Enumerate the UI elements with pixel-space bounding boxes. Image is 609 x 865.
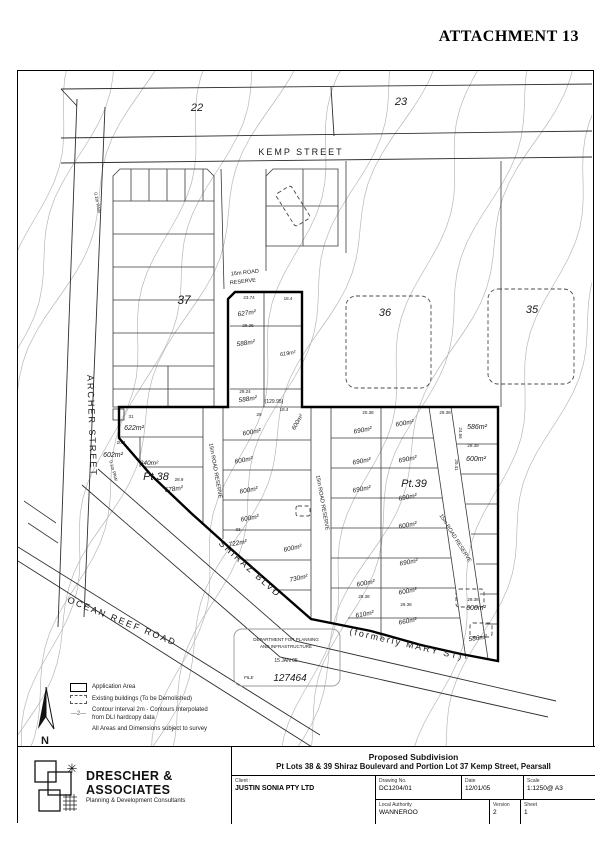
lot-area-label: 600m²	[291, 413, 305, 432]
project-title: Proposed Subdivision	[369, 752, 459, 762]
reserve-label: 0.1m PAW	[108, 460, 118, 482]
street-label: ARCHER STREET	[85, 375, 99, 477]
reserve-label: 0.1m PAW	[93, 192, 102, 214]
attachment-title: ATTACHMENT 13	[439, 28, 579, 46]
lot-area-label: 690m²	[398, 454, 418, 464]
street-label: SHIRAZ BLVD	[217, 538, 283, 599]
parcel-number: 36	[379, 307, 392, 319]
dimension-label: 20.41	[454, 459, 459, 471]
date-value: 12/01/05	[465, 785, 520, 792]
lot-area-label: 690m²	[353, 425, 373, 435]
scanned-plan-page: ATTACHMENT 13	[0, 0, 609, 865]
legend-application-area-label: Application Area	[92, 684, 135, 692]
dimension-label: 29.38	[358, 594, 370, 599]
dimension-label: 29.39	[467, 443, 479, 448]
lot-area-label: 602m²	[103, 452, 124, 459]
lot-area-label: 622m²	[124, 425, 145, 432]
dimension-label: 18.4	[284, 296, 293, 301]
project-subtitle: Pt Lots 38 & 39 Shiraz Boulevard and Por…	[276, 762, 551, 771]
dimension-label: 24.56	[458, 427, 463, 439]
dimension-label: 23.74	[243, 295, 255, 300]
parcel-number: 22	[190, 102, 203, 114]
north-label: N	[41, 735, 49, 746]
plan-sheet: DEPARTMENT FOR PLANNING AND INFRASTRUCTU…	[17, 70, 594, 823]
sheet-cell: Sheet 1	[521, 800, 595, 824]
lot-area-label: 588m²	[238, 395, 258, 405]
lot-area-label: 600m²	[466, 605, 487, 612]
lot-area-label: 586m²	[467, 424, 488, 431]
version-value: 2	[493, 809, 517, 816]
lot-area-label: 600m²	[466, 456, 487, 463]
drawing-no-cell: Drawing No. DC1204/01	[376, 776, 462, 799]
contour-line	[29, 71, 253, 746]
project-title-cell: Proposed Subdivision Pt Lots 38 & 39 Shi…	[232, 747, 595, 776]
stamp-dept-line2: AND INFRASTRUCTURE	[260, 644, 312, 649]
lot-area-label: 600m²	[242, 427, 262, 437]
legend-existing-buildings-label: Existing buildings (To be Demolished)	[92, 696, 192, 704]
dimension-label: 29.24	[239, 389, 251, 394]
parcel-number: 35	[526, 304, 539, 316]
client-label: Client :	[235, 778, 372, 784]
title-block-right: Proposed Subdivision Pt Lots 38 & 39 Shi…	[232, 747, 595, 824]
reserve-label: RESERVE	[230, 278, 257, 287]
street-label: (formerly MARY ST)	[349, 626, 465, 662]
parcel-number: 37	[177, 293, 192, 307]
scale-cell: Scale 1:1250@ A3	[524, 776, 595, 799]
date-cell: Date 12/01/05	[462, 776, 524, 799]
contour-note: Contour Interval 2m - Contours Interpola…	[92, 707, 208, 722]
lot-area-label: 600m²	[239, 485, 259, 495]
lot-area-label: 840m²	[140, 460, 159, 467]
dimension-label: 29.38	[467, 597, 479, 602]
dimension-label: 29.38	[439, 410, 451, 415]
lot-area-label: 690m²	[399, 557, 419, 567]
scale-label: Scale	[527, 778, 592, 784]
lot-area-label: 588m²	[236, 339, 256, 349]
contour-line	[151, 71, 344, 746]
reserve-label: (129.95)	[265, 399, 284, 405]
sheet-value: 1	[524, 809, 592, 816]
sheet-label: Sheet	[524, 802, 592, 808]
dimension-label: 18.4	[280, 407, 289, 412]
svg-text:✳: ✳	[67, 761, 78, 776]
lot-area-label: 600m²	[398, 520, 418, 530]
street-label: KEMP STREET	[258, 147, 343, 157]
contour-line	[413, 71, 593, 746]
dimension-label: 29	[256, 412, 262, 417]
contour-note-line1: Contour Interval 2m - Contours Interpola…	[92, 707, 208, 715]
client-value: JUSTIN SONIA PTY LTD	[235, 785, 372, 792]
stamp-dept-line1: DEPARTMENT FOR PLANNING	[253, 637, 319, 642]
version-cell: Version 2	[490, 800, 521, 824]
drescher-logo-icon: ✳	[32, 759, 82, 813]
lot-area-label: 600m²	[283, 543, 303, 554]
stamp-file-number: 127464	[273, 673, 307, 684]
drawing-no-label: Drawing No.	[379, 778, 458, 784]
parcel-number: Pt.39	[401, 478, 427, 490]
dimension-label: 20.4	[117, 440, 126, 445]
street-label: OCEAN REEF ROAD	[66, 595, 178, 648]
approval-stamp: DEPARTMENT FOR PLANNING AND INFRASTRUCTU…	[234, 629, 340, 686]
consultant-cell: ✳ DRESCHER & ASSOCIATES Planning & Devel…	[18, 747, 232, 824]
stamp-file-label: FILE	[244, 675, 255, 680]
subdivision-plan-drawing: DEPARTMENT FOR PLANNING AND INFRASTRUCTU…	[18, 71, 592, 746]
client-cell: Client : JUSTIN SONIA PTY LTD	[232, 776, 376, 824]
lot-area-label: 627m²	[237, 309, 257, 319]
stamp-date: 15 JAN 05	[274, 658, 298, 664]
lot-area-label: 690m²	[352, 456, 372, 466]
legend: Application Area Existing buildings (To …	[70, 683, 255, 734]
lot-area-label: 722m²	[228, 538, 248, 548]
lot-area-label: 678m²	[164, 485, 184, 495]
company-block: DRESCHER & ASSOCIATES Planning & Develop…	[86, 769, 231, 804]
version-label: Version	[493, 802, 517, 808]
existing-buildings-swatch	[70, 695, 87, 704]
authority-value: WANNEROO	[379, 809, 486, 816]
existing-building-outlines	[275, 185, 574, 637]
map-area: DEPARTMENT FOR PLANNING AND INFRASTRUCTU…	[18, 71, 592, 746]
scale-value: 1:1250@ A3	[527, 785, 592, 792]
application-area-swatch	[70, 683, 87, 692]
dimension-label: 28.9	[175, 477, 184, 482]
contour-line	[21, 71, 206, 746]
dimension-label: 29.38	[400, 602, 412, 607]
reserve-label: 15m ROAD RESERVE	[438, 513, 473, 564]
lot-area-label: 690m²	[352, 484, 372, 494]
legend-contour: —2— Contour Interval 2m - Contours Inter…	[70, 707, 255, 722]
lot-area-label: 600m²	[356, 578, 376, 588]
contour-note-line2: from DLI hardcopy data	[92, 715, 208, 723]
reserve-label: 15m ROAD RESERVE	[207, 443, 223, 499]
parcel-number: Pt.38	[143, 471, 170, 483]
lot-area-label: 600m²	[240, 513, 260, 523]
company-tagline: Planning & Development Consultants	[86, 798, 231, 804]
lot-area-label: 690m²	[398, 492, 418, 502]
authority-label: Local Authority	[379, 802, 486, 808]
legend-application-area: Application Area	[70, 683, 255, 692]
lot-area-label: 730m²	[289, 573, 309, 584]
contour-line	[446, 71, 592, 746]
date-label: Date	[465, 778, 520, 784]
dimension-label: 33	[235, 527, 241, 532]
title-block: ✳ DRESCHER & ASSOCIATES Planning & Devel…	[18, 746, 595, 824]
legend-existing-buildings: Existing buildings (To be Demolished)	[70, 695, 255, 704]
contour-symbol: —2—	[70, 711, 87, 719]
survey-note: All Areas and Dimensions subject to surv…	[92, 726, 255, 734]
contour-line	[18, 71, 298, 746]
lot-area-label: 619m²	[280, 350, 296, 358]
parcel-number: 23	[394, 96, 408, 108]
dimension-label: 20.38	[362, 410, 374, 415]
reserve-label: 15m ROAD RESERVE	[314, 475, 330, 531]
dimension-label: 31	[128, 414, 134, 419]
reserve-label: 16m ROAD	[231, 269, 260, 278]
dimension-label: 29.25	[242, 323, 254, 328]
lot-area-label: 600m²	[395, 418, 415, 428]
contour-line	[18, 71, 68, 408]
company-name: DRESCHER & ASSOCIATES	[86, 769, 231, 797]
authority-cell: Local Authority WANNEROO	[376, 800, 490, 824]
drawing-no-value: DC1204/01	[379, 785, 458, 792]
